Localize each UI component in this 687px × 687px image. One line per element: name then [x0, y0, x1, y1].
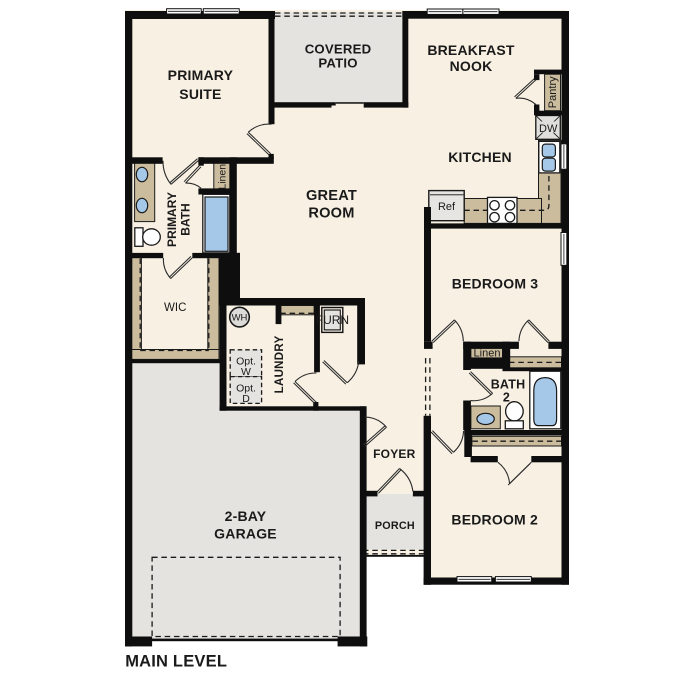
svg-text:MAIN LEVEL: MAIN LEVEL [125, 653, 227, 671]
svg-text:LAUNDRY: LAUNDRY [274, 335, 286, 393]
svg-text:WH: WH [232, 313, 248, 324]
svg-text:PRIMARY: PRIMARY [165, 192, 179, 247]
svg-text:PRIMARY: PRIMARY [168, 67, 234, 83]
svg-text:W: W [241, 366, 251, 378]
svg-text:WIC: WIC [164, 302, 186, 314]
svg-text:SUITE: SUITE [179, 86, 221, 102]
svg-text:BATH: BATH [491, 377, 526, 391]
svg-text:Ref: Ref [438, 201, 456, 213]
svg-text:D: D [242, 393, 250, 405]
svg-text:GARAGE: GARAGE [214, 526, 277, 542]
svg-text:DW: DW [539, 123, 558, 135]
svg-text:PORCH: PORCH [375, 520, 415, 532]
svg-text:BEDROOM 3: BEDROOM 3 [452, 275, 539, 291]
svg-text:PATIO: PATIO [318, 55, 357, 70]
svg-text:FOYER: FOYER [373, 447, 415, 461]
svg-text:2: 2 [503, 391, 510, 405]
svg-text:COVERED: COVERED [305, 41, 372, 56]
svg-text:GREAT: GREAT [306, 188, 357, 204]
svg-text:KITCHEN: KITCHEN [448, 149, 512, 165]
svg-text:Linen: Linen [217, 164, 229, 190]
svg-text:BREAKFAST: BREAKFAST [427, 42, 515, 58]
svg-text:Pantry: Pantry [547, 76, 559, 108]
svg-text:BATH: BATH [179, 203, 193, 235]
svg-text:Linen: Linen [474, 347, 501, 359]
svg-text:BEDROOM 2: BEDROOM 2 [451, 511, 538, 527]
svg-text:NOOK: NOOK [450, 58, 493, 74]
svg-text:ROOM: ROOM [308, 206, 354, 222]
svg-text:2-BAY: 2-BAY [225, 508, 267, 524]
svg-text:FURN: FURN [316, 313, 349, 327]
